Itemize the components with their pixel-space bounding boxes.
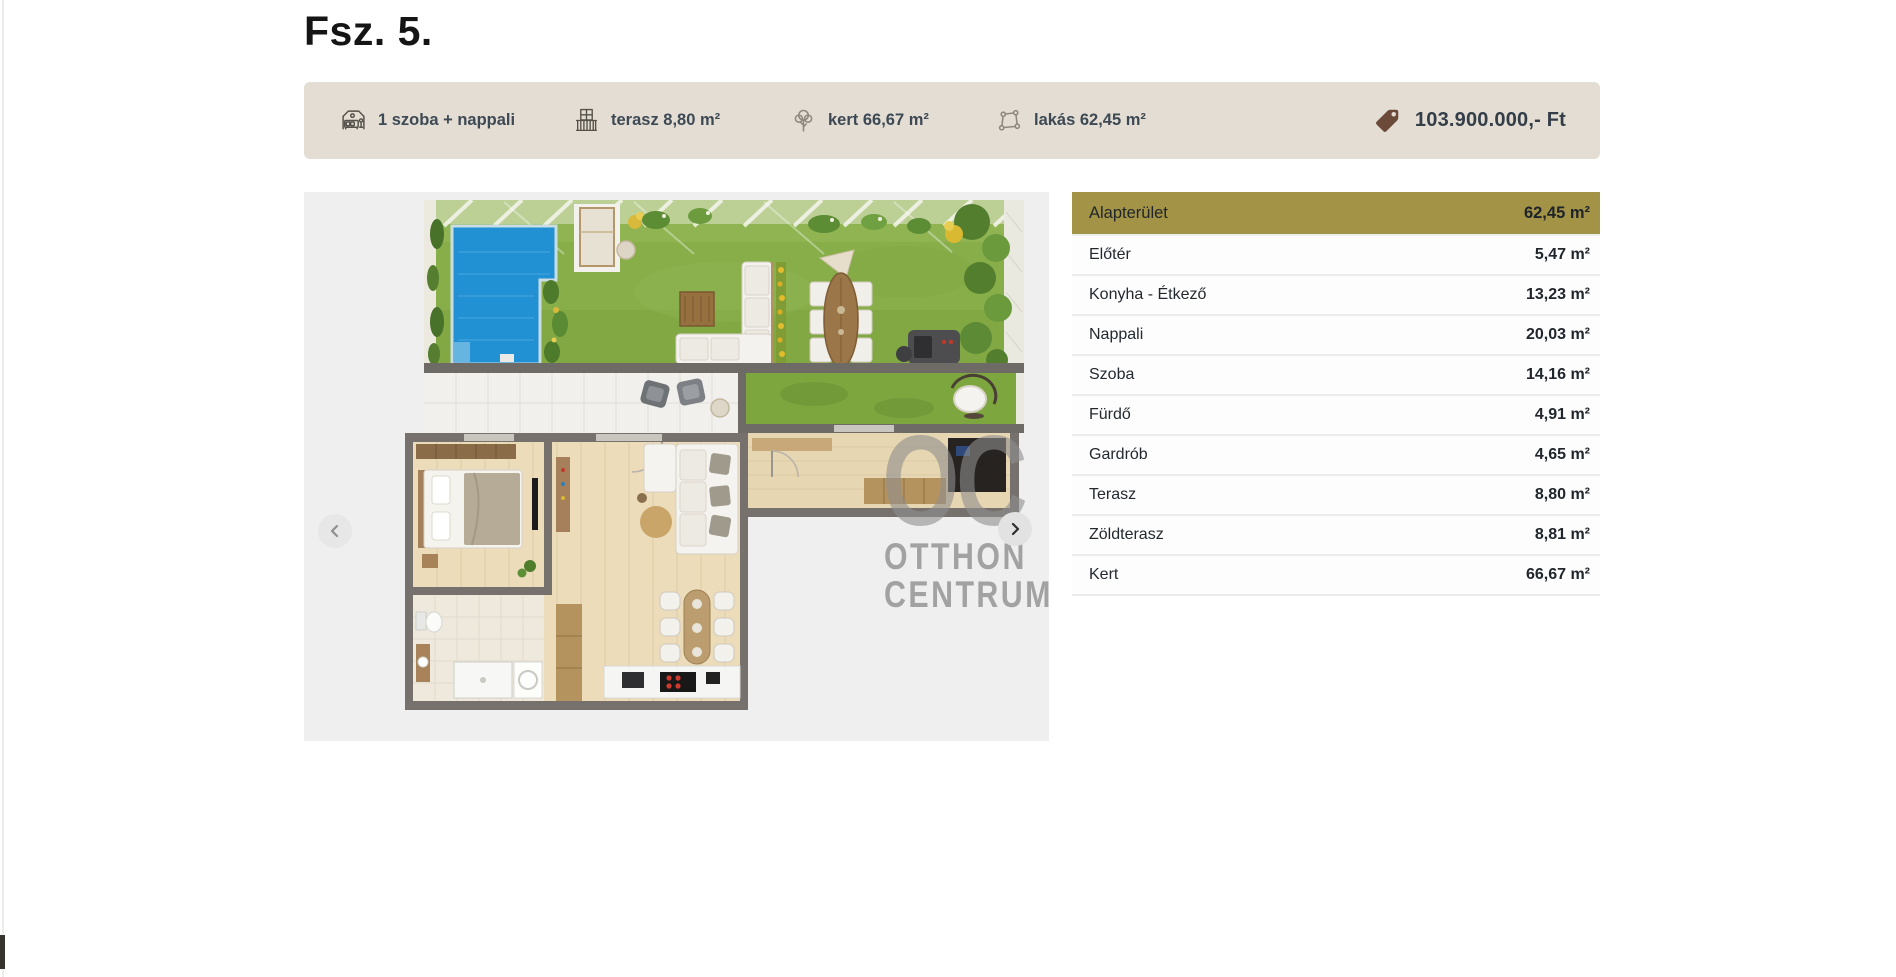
summary-item-rooms: 1 szoba + nappali bbox=[340, 82, 515, 159]
left-edge-dark-strip bbox=[0, 935, 5, 969]
chevron-right-icon bbox=[1007, 521, 1023, 537]
table-row: Nappali 20,03 m² bbox=[1072, 316, 1600, 356]
table-row: Fürdő 4,91 m² bbox=[1072, 396, 1600, 436]
summary-bar: 1 szoba + nappali terasz 8,80 m² kert 66… bbox=[304, 82, 1600, 159]
table-row: Szoba 14,16 m² bbox=[1072, 356, 1600, 396]
bedroom-icon bbox=[340, 107, 367, 134]
row-label: Zöldterasz bbox=[1089, 526, 1164, 544]
carousel-prev-button[interactable] bbox=[318, 514, 352, 548]
row-label: Terasz bbox=[1089, 486, 1136, 504]
row-label: Alapterület bbox=[1089, 204, 1168, 223]
area-icon bbox=[996, 107, 1023, 134]
row-label: Nappali bbox=[1089, 326, 1143, 344]
page-title: Fsz. 5. bbox=[304, 8, 433, 55]
summary-item-garden: kert 66,67 m² bbox=[790, 82, 929, 159]
balcony-icon bbox=[573, 107, 600, 134]
row-value: 66,67 m² bbox=[1526, 566, 1590, 584]
summary-item-apartment: lakás 62,45 m² bbox=[996, 82, 1146, 159]
price-tag-icon bbox=[1372, 106, 1402, 136]
row-value: 14,16 m² bbox=[1526, 366, 1590, 384]
row-value: 5,47 m² bbox=[1535, 246, 1590, 264]
row-value: 20,03 m² bbox=[1526, 326, 1590, 344]
carousel-next-button[interactable] bbox=[998, 512, 1032, 546]
row-value: 4,91 m² bbox=[1535, 406, 1590, 424]
dining-set bbox=[660, 590, 734, 664]
row-value: 8,80 m² bbox=[1535, 486, 1590, 504]
row-label: Kert bbox=[1089, 566, 1118, 584]
row-label: Gardrób bbox=[1089, 446, 1148, 464]
row-value: 4,65 m² bbox=[1535, 446, 1590, 464]
table-row: Gardrób 4,65 m² bbox=[1072, 436, 1600, 476]
listing-page: Fsz. 5. 1 szoba + nappali bbox=[0, 0, 1896, 977]
flower-strip bbox=[776, 262, 786, 364]
pool bbox=[452, 226, 556, 364]
chevron-left-icon bbox=[327, 523, 343, 539]
floor-plan-carousel: OC OTTHON CENTRUM bbox=[304, 192, 1049, 741]
price-block: 103.900.000,- Ft bbox=[1372, 82, 1566, 159]
table-row: Zöldterasz 8,81 m² bbox=[1072, 516, 1600, 556]
area-table-header-row: Alapterület 62,45 m² bbox=[1072, 192, 1600, 236]
table-row: Kert 66,67 m² bbox=[1072, 556, 1600, 596]
row-label: Előtér bbox=[1089, 246, 1131, 264]
table-row: Terasz 8,80 m² bbox=[1072, 476, 1600, 516]
tree-icon bbox=[790, 107, 817, 134]
row-label: Szoba bbox=[1089, 366, 1134, 384]
table-row: Előtér 5,47 m² bbox=[1072, 236, 1600, 276]
area-table: Alapterület 62,45 m² Előtér 5,47 m² Kony… bbox=[1072, 192, 1600, 596]
summary-item-terrace: terasz 8,80 m² bbox=[573, 82, 720, 159]
row-label: Konyha - Étkező bbox=[1089, 286, 1206, 304]
row-value: 8,81 m² bbox=[1535, 526, 1590, 544]
terrace bbox=[424, 373, 746, 433]
garden-wall bbox=[424, 363, 1024, 373]
left-edge-divider bbox=[2, 0, 4, 977]
row-value: 13,23 m² bbox=[1526, 286, 1590, 304]
price-value: 103.900.000,- Ft bbox=[1415, 109, 1566, 132]
summary-item-label: 1 szoba + nappali bbox=[378, 111, 515, 130]
summary-item-label: lakás 62,45 m² bbox=[1034, 111, 1146, 130]
row-value: 62,45 m² bbox=[1524, 204, 1590, 223]
watermark-line2: CENTRUM bbox=[884, 576, 1049, 613]
summary-item-label: kert 66,67 m² bbox=[828, 111, 929, 130]
row-label: Fürdő bbox=[1089, 406, 1131, 424]
summary-item-label: terasz 8,80 m² bbox=[611, 111, 720, 130]
table-row: Konyha - Étkező 13,23 m² bbox=[1072, 276, 1600, 316]
